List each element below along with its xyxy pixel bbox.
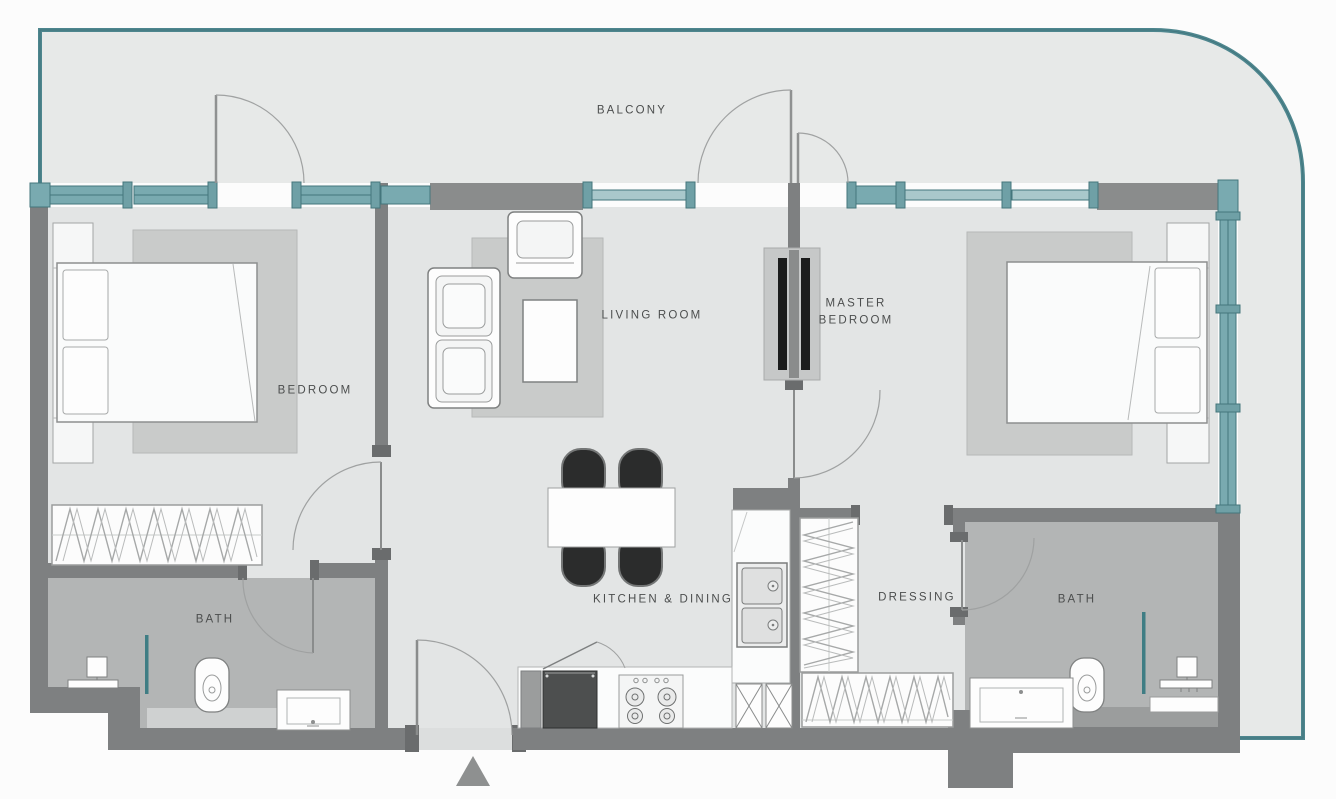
entrance-arrow-icon [456, 756, 490, 786]
sofa [428, 268, 500, 408]
room-label-bedroom: BEDROOM [278, 383, 353, 400]
room-label-kitchen-dining: KITCHEN & DINING [593, 592, 733, 609]
room-label-bath-1: BATH [196, 612, 235, 629]
floor-plan: BALCONY BEDROOM LIVING ROOM MASTER BEDRO… [0, 0, 1336, 799]
kitchen-sink-unit [737, 563, 787, 647]
room-label-bath-2: BATH [1058, 592, 1097, 609]
dining-table [548, 488, 675, 547]
vanity-1 [277, 690, 350, 730]
coffee-table [523, 300, 577, 382]
room-label-dressing: DRESSING [878, 590, 956, 607]
toilet-2 [1070, 658, 1104, 712]
bedroom-bed [57, 263, 257, 422]
vanity-2 [970, 678, 1073, 728]
master-bed [1007, 262, 1207, 423]
dressing-wardrobe-bottom [802, 673, 953, 727]
room-label-living-room: LIVING ROOM [602, 308, 703, 325]
room-label-master-bedroom: MASTER BEDROOM [796, 295, 916, 328]
bedroom-wardrobe [52, 505, 262, 565]
glass-wall-right [1216, 212, 1240, 513]
toilet-1 [195, 658, 229, 712]
cooktop [619, 675, 683, 728]
dressing-wardrobe-side [800, 518, 858, 672]
exterior-cutout [30, 713, 110, 799]
room-label-balcony: BALCONY [597, 103, 667, 120]
armchair [508, 212, 582, 278]
